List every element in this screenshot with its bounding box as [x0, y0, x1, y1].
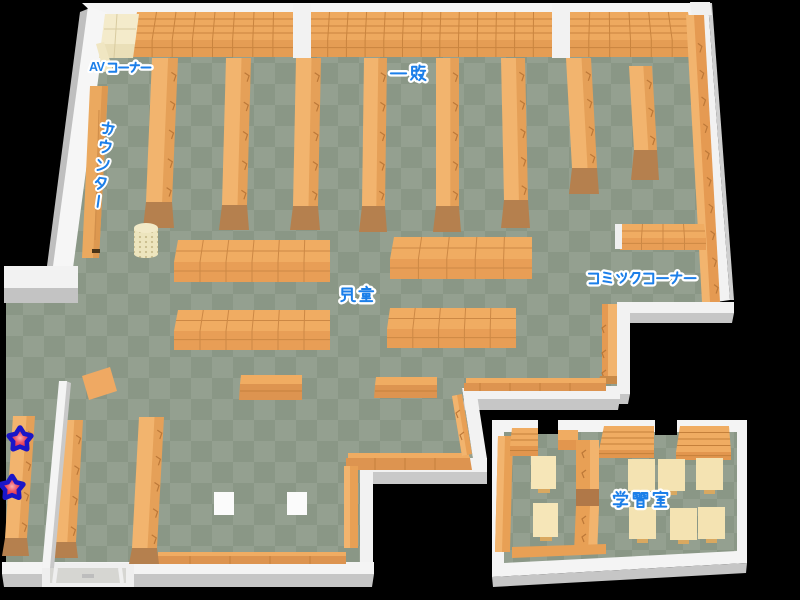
- svg-text:AV: AV: [89, 60, 106, 74]
